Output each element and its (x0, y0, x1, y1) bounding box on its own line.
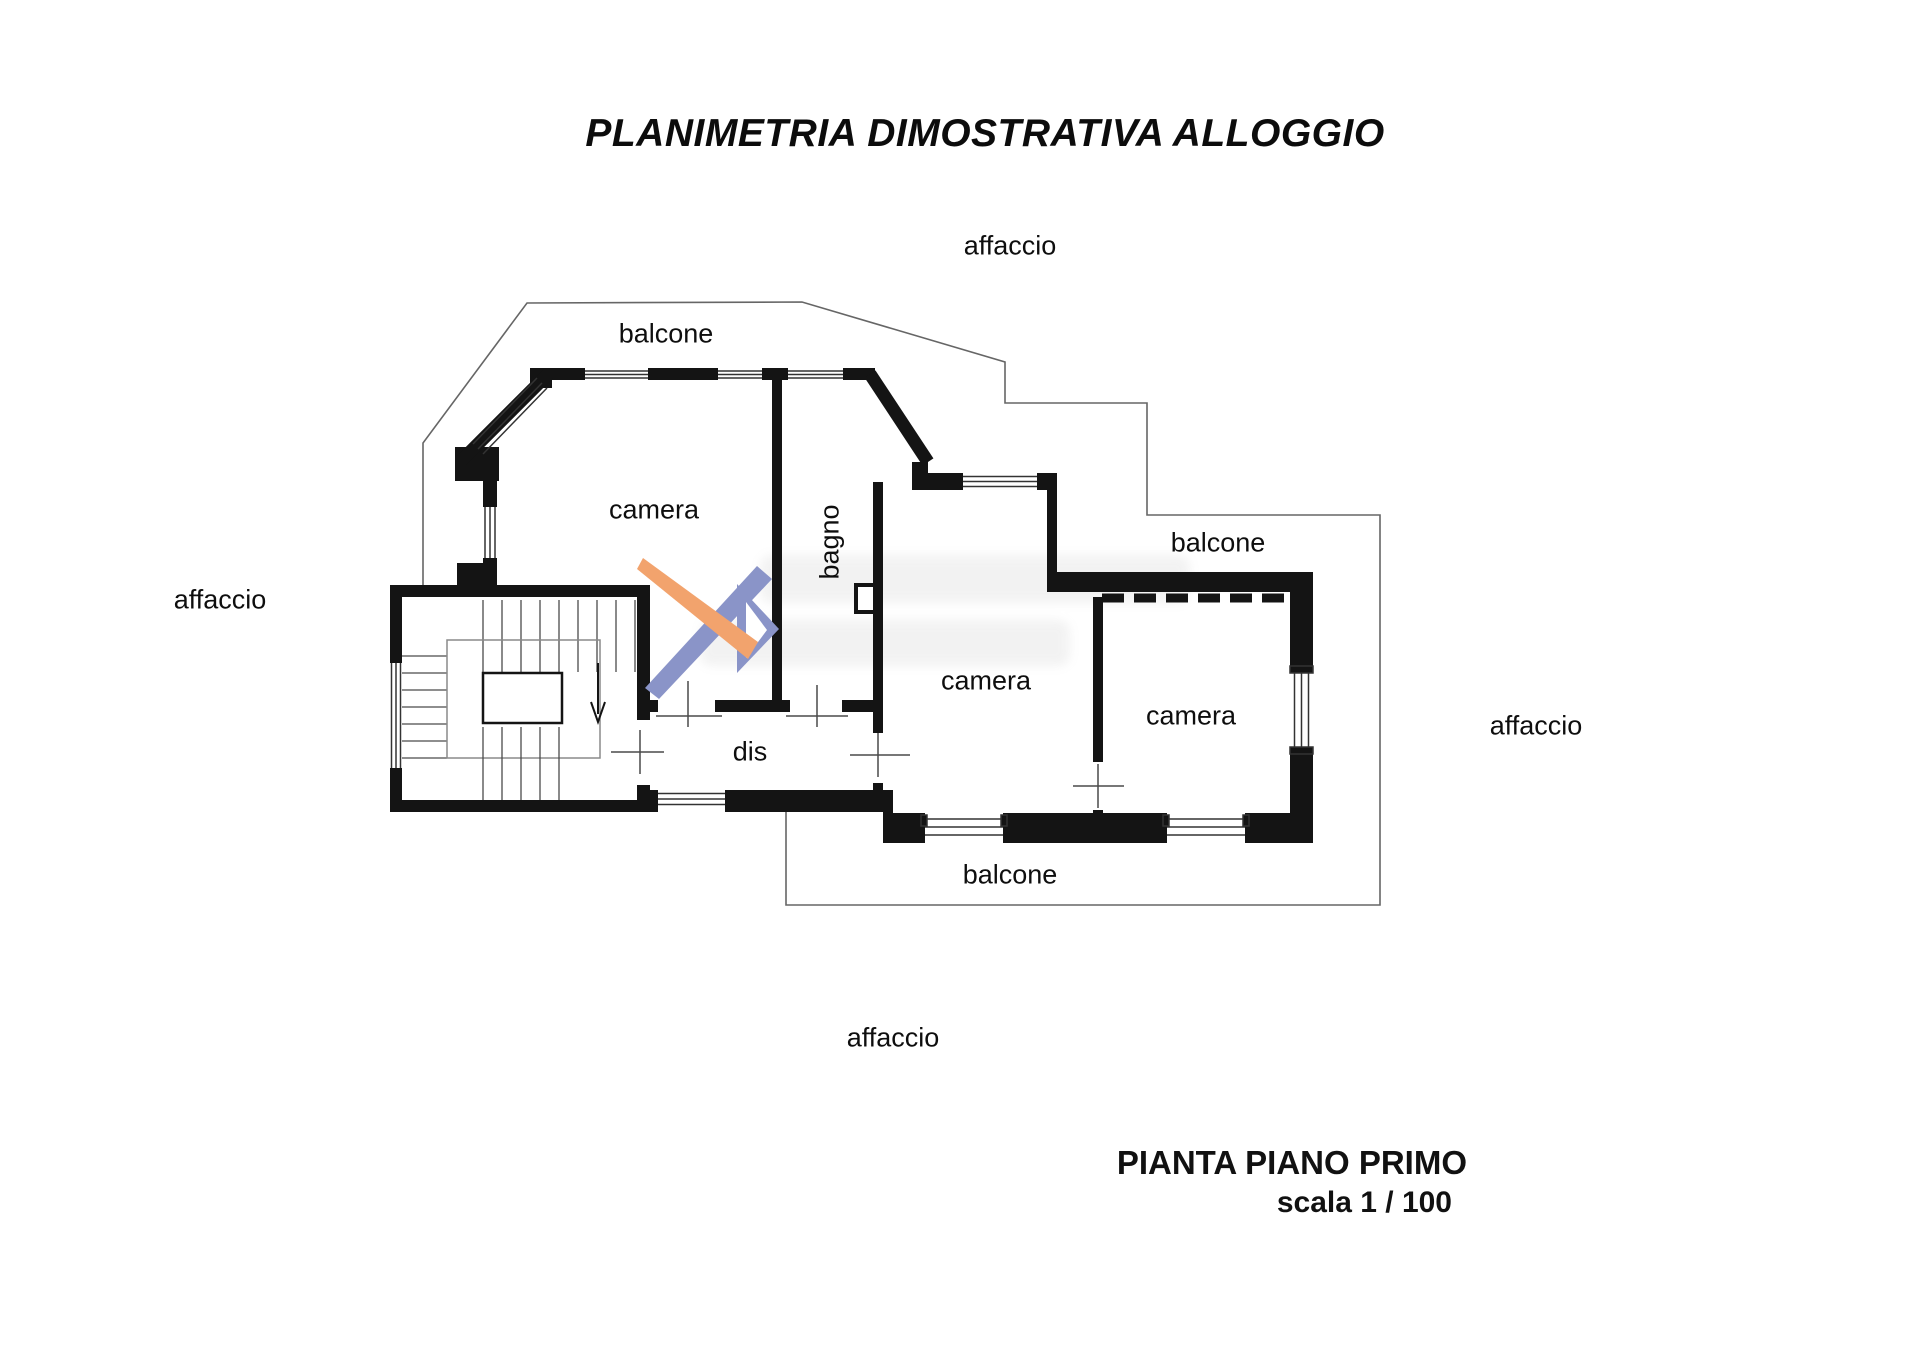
label-affaccio-bottom: affaccio (847, 1023, 940, 1054)
label-affaccio-left: affaccio (174, 585, 267, 616)
label-affaccio-top: affaccio (964, 231, 1057, 262)
label-balcone-right: balcone (1171, 528, 1266, 559)
label-balcone-bottom: balcone (963, 860, 1058, 891)
caption-plan-name: PIANTA PIANO PRIMO (1055, 1144, 1467, 1182)
stairs-down-arrow-icon (591, 663, 605, 722)
label-room-camera-right: camera (1146, 701, 1236, 732)
label-room-camera-nw: camera (609, 495, 699, 526)
drawing-caption: PIANTA PIANO PRIMO scala 1 / 100 (1055, 1144, 1467, 1220)
caption-scale: scala 1 / 100 (1055, 1186, 1452, 1220)
label-room-camera-mid: camera (941, 666, 1031, 697)
label-room-bagno: bagno (815, 504, 846, 579)
stair-landing (483, 673, 562, 723)
staircase (402, 600, 635, 800)
floorplan-page: PLANIMETRIA DIMOSTRATIVA ALLOGGIO (0, 0, 1920, 1357)
label-affaccio-right: affaccio (1490, 711, 1583, 742)
watermark-logo (637, 558, 779, 699)
label-balcone-top: balcone (619, 319, 714, 350)
label-room-dis: dis (733, 737, 768, 768)
walls (390, 368, 1313, 843)
